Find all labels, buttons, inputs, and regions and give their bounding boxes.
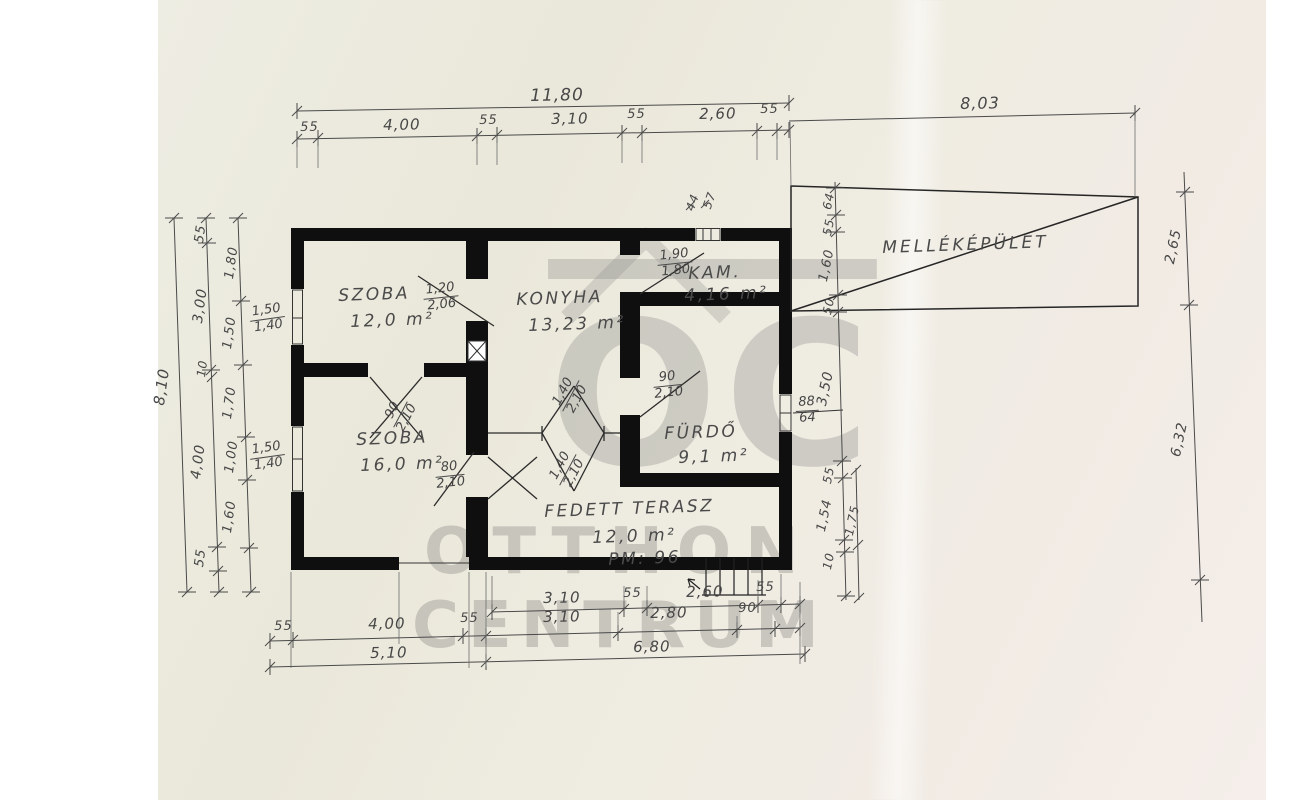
dim-bottom3: 5,10	[370, 643, 408, 662]
dim-top-total: 11,80	[530, 85, 584, 106]
room-area-szoba1: 12,0 m²	[350, 309, 435, 332]
dim-left-mid: 55	[192, 224, 209, 244]
dim-top-seg: 2,60	[699, 104, 737, 123]
dim-bottom2: 2,80	[650, 603, 688, 622]
floorplan-scan: OC OTTHON CENTRUM	[0, 0, 1300, 800]
dim-top-seg: 55	[627, 107, 646, 122]
dim-bottom3: 6,80	[633, 637, 671, 656]
dim-bottom1: 55	[756, 580, 775, 595]
dim-top-seg: 4,00	[383, 115, 421, 134]
dim-bottom2: 55	[460, 611, 479, 626]
room-label-konyha: KONYHA	[516, 287, 603, 310]
dim-top-seg: 55	[760, 102, 779, 117]
dim-bottom2: 4,00	[368, 614, 406, 633]
room-area-szoba2: 16,0 m²	[360, 453, 445, 476]
dim-bottom2: 3,10	[543, 607, 581, 626]
window-size-label: 8864	[795, 395, 819, 427]
room-area-terasz: 12,0 m²	[592, 525, 677, 548]
dim-bottom1: 3,10	[543, 588, 581, 607]
room-area-furdo: 9,1 m²	[678, 446, 749, 468]
room-label-kamra: KAM.	[688, 262, 742, 284]
room-area-konyha: 13,23 m²	[528, 313, 626, 336]
dim-top-seg: 55	[479, 113, 498, 128]
room-area-kamra: 4,16 m²	[684, 283, 769, 306]
room-label-szoba1: SZOBA	[338, 284, 410, 306]
window-size-label: 1,501,40	[248, 301, 287, 336]
dim-bottom1: 2,60	[686, 582, 724, 601]
dim-left-mid: 10	[194, 359, 210, 378]
door-height: 2,10	[654, 385, 684, 403]
dim-top-seg: 3,10	[551, 109, 589, 128]
dim-bottom2: 55	[274, 619, 293, 634]
dim-bottom2: 90	[738, 601, 757, 616]
dim-bottom1: 55	[623, 586, 642, 601]
dim-top-right: 8,03	[960, 93, 1000, 113]
plan-linework	[0, 0, 1300, 800]
room-note-terasz: PM: 96	[608, 547, 681, 570]
door-height: 2,10	[436, 475, 466, 493]
dim-top-seg: 55	[300, 120, 319, 135]
room-label-szoba2: SZOBA	[356, 428, 428, 450]
window-height: 64	[796, 411, 819, 427]
door-size-label: 902,10	[652, 369, 684, 403]
dim-left-mid: 55	[192, 548, 209, 568]
room-label-furdo: FÜRDŐ	[664, 421, 738, 444]
window-size-label: 1,501,40	[248, 439, 287, 474]
